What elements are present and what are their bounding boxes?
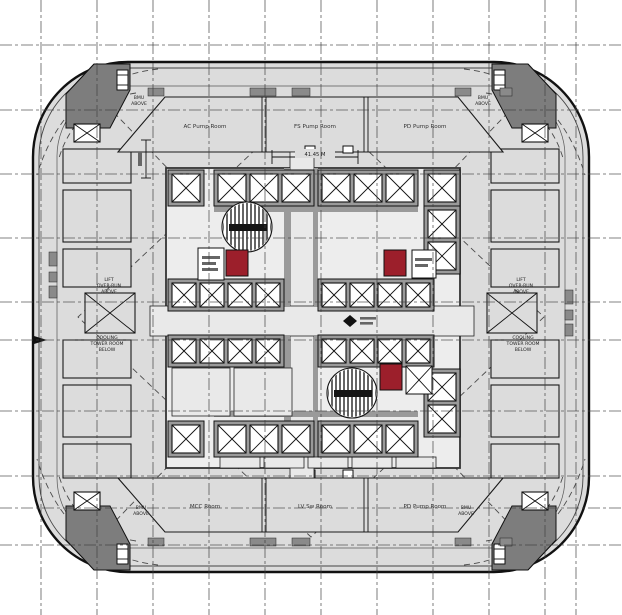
lift-bank: [214, 421, 314, 457]
room-label-pd-pump: PD Pump Room: [404, 124, 447, 130]
louvre-strip: [148, 88, 164, 96]
lift-overrun-note-left: LIFT: [104, 277, 113, 283]
room-label-pd-pump-2: PD Pump Room: [404, 504, 447, 510]
louvre-strip: [565, 310, 573, 320]
louvre-strip: [565, 324, 573, 336]
corner-note-br: ABOVE: [458, 511, 474, 517]
louvre-strip: [250, 88, 276, 96]
perimeter-room: [491, 444, 559, 478]
lift-bank: [168, 279, 284, 311]
lift-overrun-note-right: LIFT: [516, 277, 525, 283]
room-label-ac-pump: AC Pump Room: [184, 124, 227, 130]
core-wall: [318, 206, 418, 212]
cooling-tower-note-left: BELOW: [99, 347, 116, 353]
small-room: [308, 457, 348, 468]
bottom-plant-band: [118, 470, 503, 532]
equipment-label-smudge: [202, 268, 218, 271]
lift-bank: [318, 170, 418, 206]
core-small-rooms: [220, 457, 436, 468]
room-label-fs-pump: FS Pump Room: [294, 124, 336, 130]
corner-note-tr: BMU: [478, 95, 488, 101]
louvre-strip: [49, 252, 57, 266]
level-text-smudge: [360, 317, 376, 320]
small-room: [396, 457, 436, 468]
lift-overrun-note-left: OVER-RUN: [97, 283, 121, 289]
lift-overrun-box: [487, 293, 537, 333]
stair-label-smudge: [334, 390, 372, 397]
corner-note-tl: BMU: [134, 95, 144, 101]
lift-overrun-box: [85, 293, 135, 333]
equipment-label-smudge: [415, 264, 428, 267]
small-room: [264, 457, 304, 468]
lift-bank: [424, 170, 460, 206]
small-room: [352, 457, 392, 468]
door-notch: [343, 146, 353, 153]
level-text-smudge: [360, 322, 373, 325]
louvre-strip: [455, 88, 471, 96]
core-wall: [314, 336, 318, 468]
equipment-label-smudge: [415, 258, 432, 261]
louvre-strip: [49, 286, 57, 298]
perimeter-room: [491, 149, 559, 183]
equipment-label-smudge: [202, 256, 220, 259]
lift-overrun-note-left: ABOVE: [101, 289, 117, 295]
lift-bank: [168, 170, 204, 206]
cooling-tower-note-right: TOWER ROOM: [506, 341, 540, 347]
fire-equipment-box: [380, 364, 402, 390]
lift-bank: [318, 279, 434, 311]
louvre-strip: [49, 272, 57, 282]
core-room: [172, 368, 230, 416]
core-wall: [314, 168, 318, 306]
core-room: [234, 368, 292, 416]
core-width-dimension-text: 41.45 M: [305, 152, 326, 158]
stair-shaft: [222, 202, 272, 252]
dimension-text-smudge: [138, 152, 142, 166]
louvre-strip: [500, 88, 512, 96]
lift-bank: [168, 421, 204, 457]
fire-equipment-box: [384, 250, 406, 276]
perimeter-room: [491, 190, 559, 242]
corner-note-tl: ABOVE: [131, 101, 147, 107]
room-label-mcc: MCC Room: [190, 504, 220, 510]
stair-label-smudge: [229, 224, 267, 231]
louvre-strip: [292, 88, 310, 96]
cooling-tower-note-right: BELOW: [515, 347, 532, 353]
room-label-lv-sw: LV Sw Room: [298, 504, 332, 510]
lift-bank: [318, 421, 418, 457]
cooling-tower-note-left: TOWER ROOM: [90, 341, 124, 347]
floor-plan-screenshot: 41.45 M AC Pump Room FS Pump Room PD Pum…: [0, 0, 622, 615]
corner-note-bl: ABOVE: [133, 511, 149, 517]
lift-bank: [214, 170, 314, 206]
fire-equipment-box: [226, 250, 248, 276]
lift-overrun-note-right: ABOVE: [513, 289, 529, 295]
small-room: [220, 457, 260, 468]
tower-floor-plan-drawing: 41.45 M AC Pump Room FS Pump Room PD Pum…: [0, 0, 622, 615]
door-notch: [343, 470, 353, 478]
lift-overrun-note-right: OVER-RUN: [509, 283, 533, 289]
stair-shaft: [327, 368, 377, 418]
